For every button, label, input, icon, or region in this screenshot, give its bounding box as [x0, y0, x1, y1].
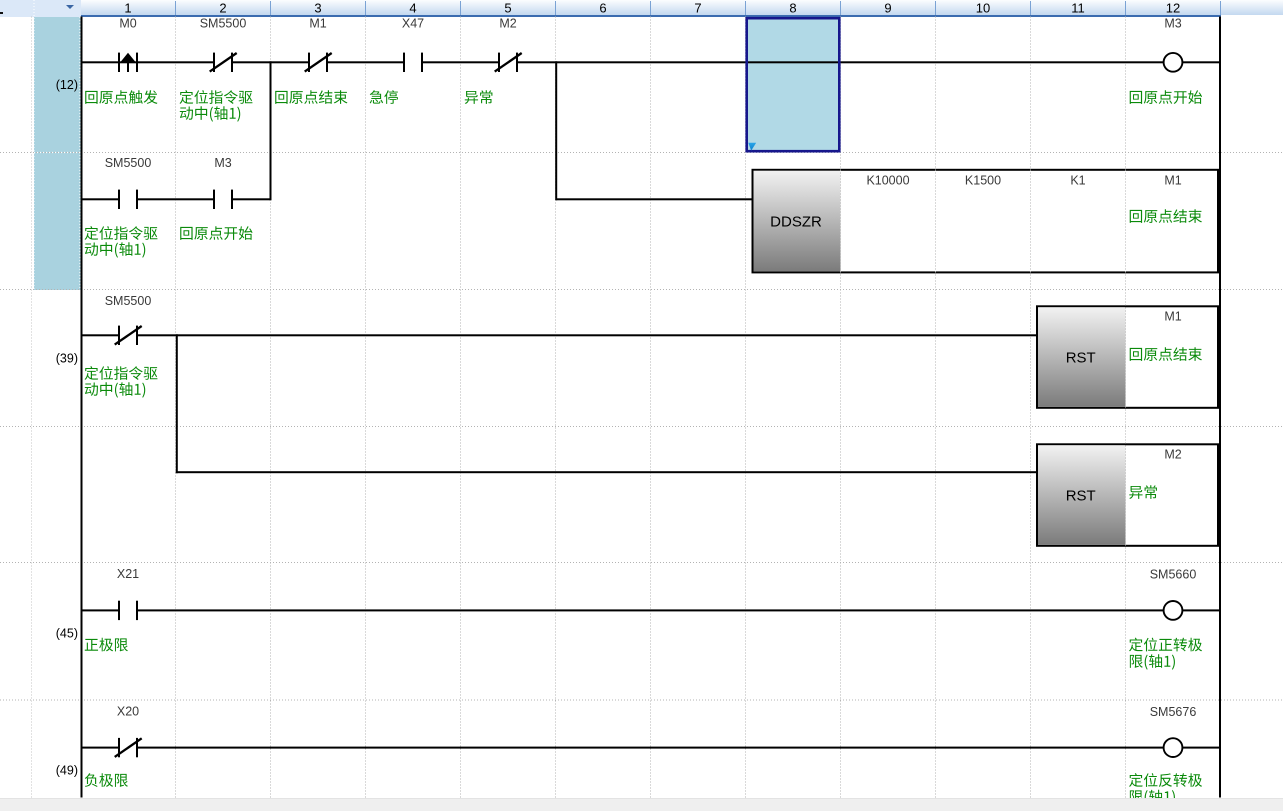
svg-text:1: 1: [124, 1, 131, 16]
svg-text:M1: M1: [309, 17, 326, 31]
svg-text:SM5660: SM5660: [1150, 568, 1197, 582]
svg-text:(12): (12): [56, 78, 78, 92]
svg-text:SM5500: SM5500: [200, 17, 247, 31]
svg-text:11: 11: [1071, 1, 1085, 16]
svg-text:8: 8: [789, 1, 796, 16]
svg-text:M1: M1: [1164, 310, 1181, 324]
svg-text:5: 5: [504, 1, 511, 16]
svg-text:(49): (49): [56, 764, 78, 778]
svg-text:M0: M0: [119, 17, 136, 31]
svg-text:M1: M1: [1164, 174, 1181, 188]
svg-text:RST: RST: [1066, 350, 1096, 367]
svg-text:(39): (39): [56, 352, 78, 366]
svg-text:SM5676: SM5676: [1150, 705, 1197, 719]
svg-text:SM5500: SM5500: [105, 156, 152, 170]
svg-text:K1: K1: [1070, 174, 1085, 188]
svg-text:X21: X21: [117, 567, 139, 581]
svg-text:6: 6: [599, 1, 606, 16]
svg-text:4: 4: [409, 1, 416, 16]
svg-text:RST: RST: [1066, 488, 1096, 505]
svg-text:9: 9: [884, 1, 891, 16]
svg-text:DDSZR: DDSZR: [770, 214, 822, 231]
svg-text:K1500: K1500: [965, 174, 1001, 188]
svg-text:2: 2: [219, 1, 226, 16]
svg-text:M3: M3: [214, 156, 231, 170]
svg-text:X20: X20: [117, 705, 139, 719]
svg-text:3: 3: [314, 1, 321, 16]
svg-text:X47: X47: [402, 17, 424, 31]
svg-text:10: 10: [976, 1, 990, 16]
svg-text:SM5500: SM5500: [105, 294, 152, 308]
svg-text:K10000: K10000: [866, 174, 909, 188]
svg-text:M2: M2: [499, 17, 516, 31]
svg-text:M3: M3: [1164, 17, 1181, 31]
svg-text:7: 7: [694, 1, 701, 16]
svg-text:M2: M2: [1164, 448, 1181, 462]
svg-text:12: 12: [1166, 1, 1180, 16]
svg-text:(45): (45): [56, 627, 78, 641]
